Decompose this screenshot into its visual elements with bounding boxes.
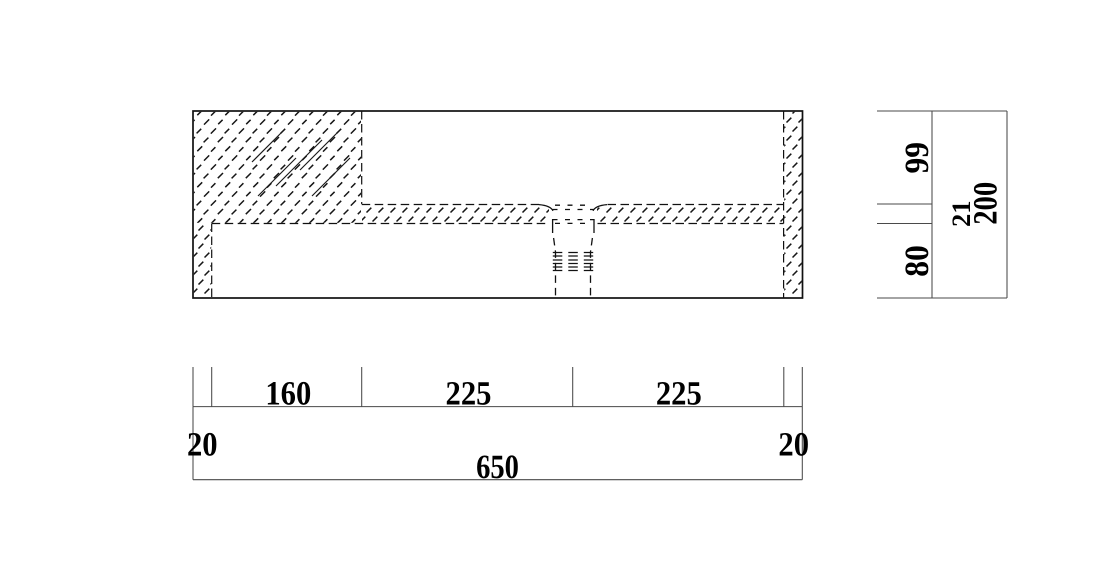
svg-text:20: 20: [778, 427, 809, 464]
svg-text:80: 80: [899, 245, 936, 277]
svg-text:200: 200: [967, 182, 1004, 225]
svg-text:160: 160: [265, 375, 311, 412]
svg-text:650: 650: [476, 449, 519, 486]
svg-text:225: 225: [656, 375, 702, 412]
svg-text:99: 99: [899, 142, 936, 174]
svg-text:225: 225: [446, 375, 492, 412]
svg-text:20: 20: [187, 427, 218, 464]
